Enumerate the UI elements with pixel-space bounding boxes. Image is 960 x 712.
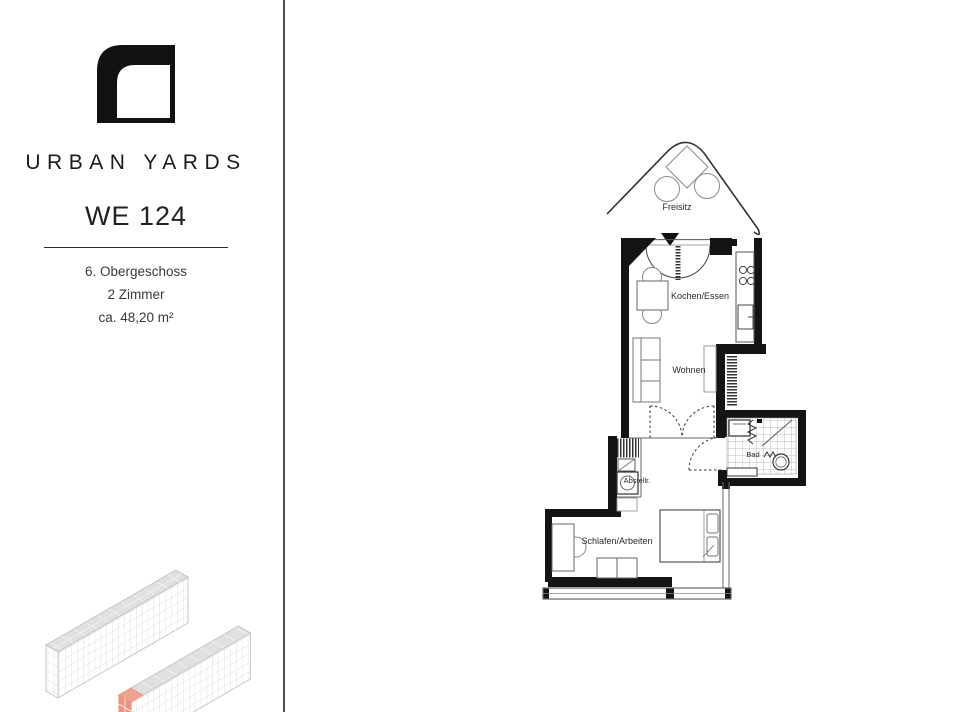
bathroom-sink xyxy=(729,420,750,436)
dining-table xyxy=(637,268,668,324)
floorplan-sheet: URBAN YARDS WE 124 6. Obergeschoss 2 Zim… xyxy=(0,0,960,712)
brand-name: URBAN YARDS xyxy=(0,151,272,175)
interior-double-door xyxy=(650,406,714,438)
freisitz-terrace: Freisitz xyxy=(607,142,759,234)
logo-inner-cutout xyxy=(117,65,170,118)
vertical-divider xyxy=(283,0,285,712)
sidebar-divider xyxy=(44,247,228,248)
bathroom xyxy=(727,418,796,476)
room-label-bad: Bad xyxy=(746,450,759,459)
cabinet xyxy=(704,346,716,392)
sofa xyxy=(633,338,660,402)
buildings-illustration xyxy=(30,550,270,712)
room-label-schlafen-arbeiten: Schlafen/Arbeiten xyxy=(581,536,652,546)
bath-bench xyxy=(727,468,757,476)
terrace-chair-right xyxy=(695,174,720,199)
building-1-end-face xyxy=(46,645,58,698)
room-label-kochen-essen: Kochen/Essen xyxy=(671,291,729,301)
unit-floor: 6. Obergeschoss xyxy=(0,260,272,283)
kitchen-counter xyxy=(736,252,755,342)
dresser xyxy=(597,558,637,578)
terrace-chair-left xyxy=(655,177,680,202)
sidebar: URBAN YARDS WE 124 6. Obergeschoss 2 Zim… xyxy=(0,0,272,329)
unit-rooms: 2 Zimmer xyxy=(0,283,272,306)
room-label-abstellraum: Abstellr. xyxy=(624,476,651,485)
pillow xyxy=(707,514,718,533)
room-label-freisitz: Freisitz xyxy=(663,202,692,212)
desk xyxy=(552,524,574,571)
shelf xyxy=(617,498,637,511)
bathroom-door xyxy=(689,437,722,470)
unit-area: ca. 48,20 m² xyxy=(0,306,272,329)
urban-yards-logo xyxy=(97,45,175,123)
room-label-wohnen: Wohnen xyxy=(672,365,705,375)
floorplan-svg: Freisitz xyxy=(540,128,820,608)
storage-room xyxy=(617,459,638,511)
unit-id: WE 124 xyxy=(0,201,272,232)
